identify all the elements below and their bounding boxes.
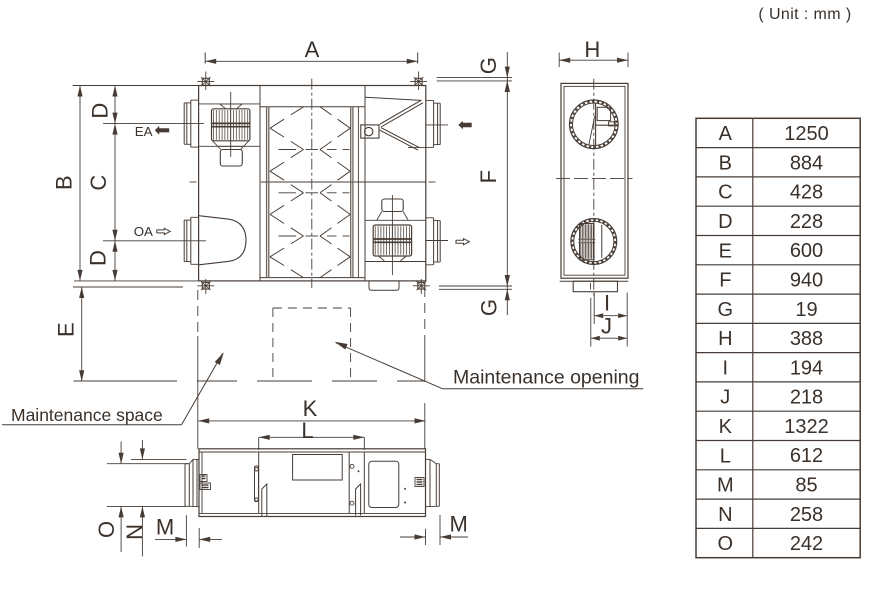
svg-text:G: G <box>718 299 734 321</box>
svg-text:N: N <box>122 524 147 540</box>
svg-text:G: G <box>476 57 501 74</box>
svg-text:G: G <box>476 299 501 316</box>
svg-text:612: 612 <box>790 445 823 467</box>
svg-text:242: 242 <box>790 533 823 555</box>
svg-text:B: B <box>719 152 732 174</box>
svg-text:I: I <box>723 357 729 379</box>
svg-text:D: D <box>85 250 110 266</box>
svg-text:I: I <box>604 291 610 316</box>
svg-text:C: C <box>718 182 732 204</box>
svg-text:940: 940 <box>790 269 823 291</box>
svg-text:K: K <box>719 416 733 438</box>
svg-text:J: J <box>720 387 730 409</box>
svg-text:M: M <box>450 512 468 537</box>
svg-text:J: J <box>601 314 612 339</box>
svg-text:Maintenance space: Maintenance space <box>11 405 163 425</box>
svg-text:C: C <box>86 175 111 191</box>
svg-text:19: 19 <box>795 299 817 321</box>
svg-text:M: M <box>717 475 734 497</box>
svg-text:D: D <box>88 103 113 119</box>
svg-text:OA: OA <box>134 224 153 239</box>
svg-text:E: E <box>719 240 732 262</box>
svg-text:85: 85 <box>795 475 817 497</box>
svg-text:F: F <box>719 270 731 292</box>
svg-text:H: H <box>718 328 732 350</box>
svg-text:A: A <box>305 37 320 62</box>
svg-text:A: A <box>719 123 733 145</box>
svg-text:884: 884 <box>790 152 823 174</box>
svg-text:O: O <box>94 521 119 538</box>
svg-text:L: L <box>720 445 731 467</box>
svg-text:Maintenance opening: Maintenance opening <box>453 366 639 388</box>
svg-text:O: O <box>718 533 734 555</box>
svg-text:1322: 1322 <box>784 416 829 438</box>
svg-text:258: 258 <box>790 504 823 526</box>
svg-text:M: M <box>156 514 174 539</box>
svg-text:F: F <box>476 170 501 183</box>
svg-text:EA: EA <box>135 124 153 139</box>
svg-text:194: 194 <box>790 357 823 379</box>
svg-text:1250: 1250 <box>784 123 829 145</box>
svg-text:D: D <box>718 211 732 233</box>
svg-text:218: 218 <box>790 387 823 409</box>
svg-text:600: 600 <box>790 240 823 262</box>
svg-text:B: B <box>51 175 76 190</box>
svg-text:( Unit : mm ): ( Unit : mm ) <box>758 6 851 23</box>
svg-text:228: 228 <box>790 211 823 233</box>
svg-text:H: H <box>584 37 600 62</box>
svg-text:428: 428 <box>790 182 823 204</box>
svg-text:N: N <box>718 504 732 526</box>
svg-text:L: L <box>301 418 313 443</box>
svg-text:388: 388 <box>790 328 823 350</box>
svg-text:E: E <box>54 322 79 337</box>
